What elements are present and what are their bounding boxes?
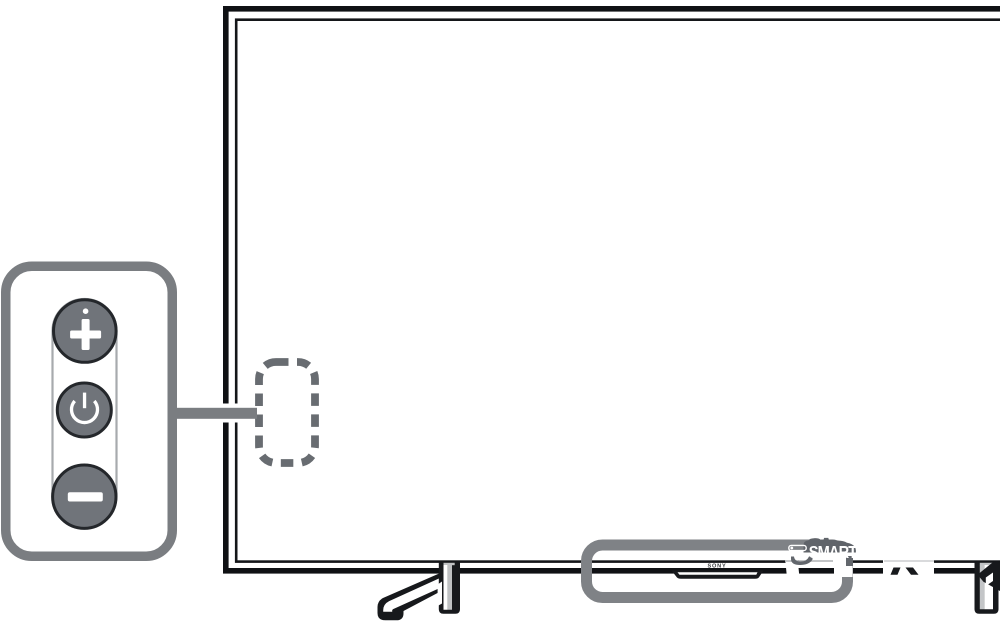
svg-text:SONY: SONY bbox=[707, 563, 726, 569]
svg-text:SMART: SMART bbox=[809, 542, 858, 562]
